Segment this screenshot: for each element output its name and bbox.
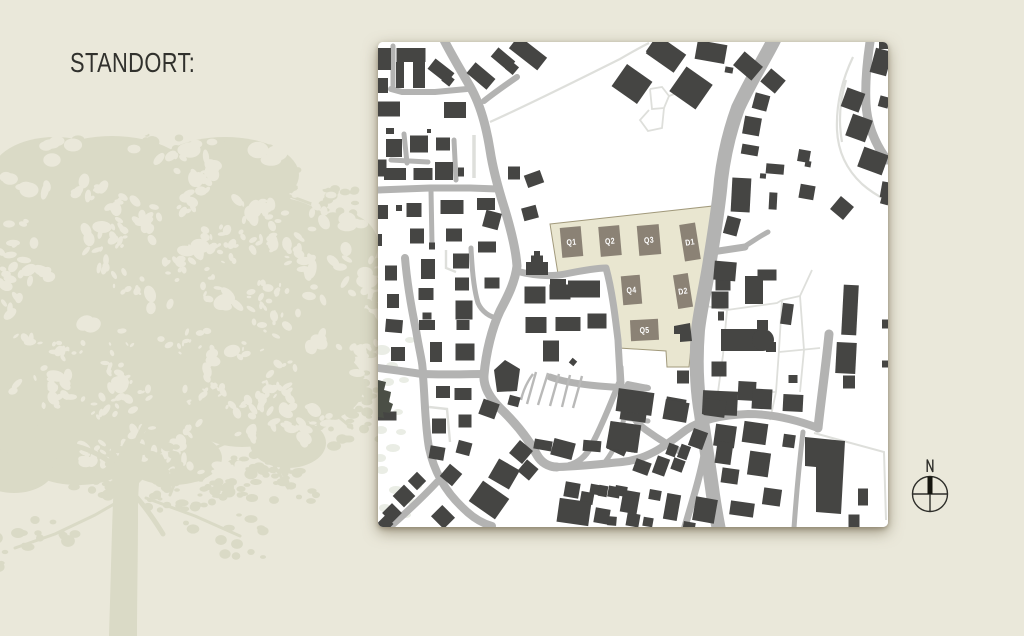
- svg-text:D1: D1: [685, 237, 696, 248]
- svg-text:Q2: Q2: [605, 236, 616, 247]
- svg-text:D2: D2: [678, 286, 689, 297]
- svg-text:Q4: Q4: [626, 285, 637, 296]
- svg-text:Q5: Q5: [639, 325, 650, 335]
- svg-text:Q3: Q3: [644, 235, 655, 246]
- svg-text:Q1: Q1: [566, 237, 577, 248]
